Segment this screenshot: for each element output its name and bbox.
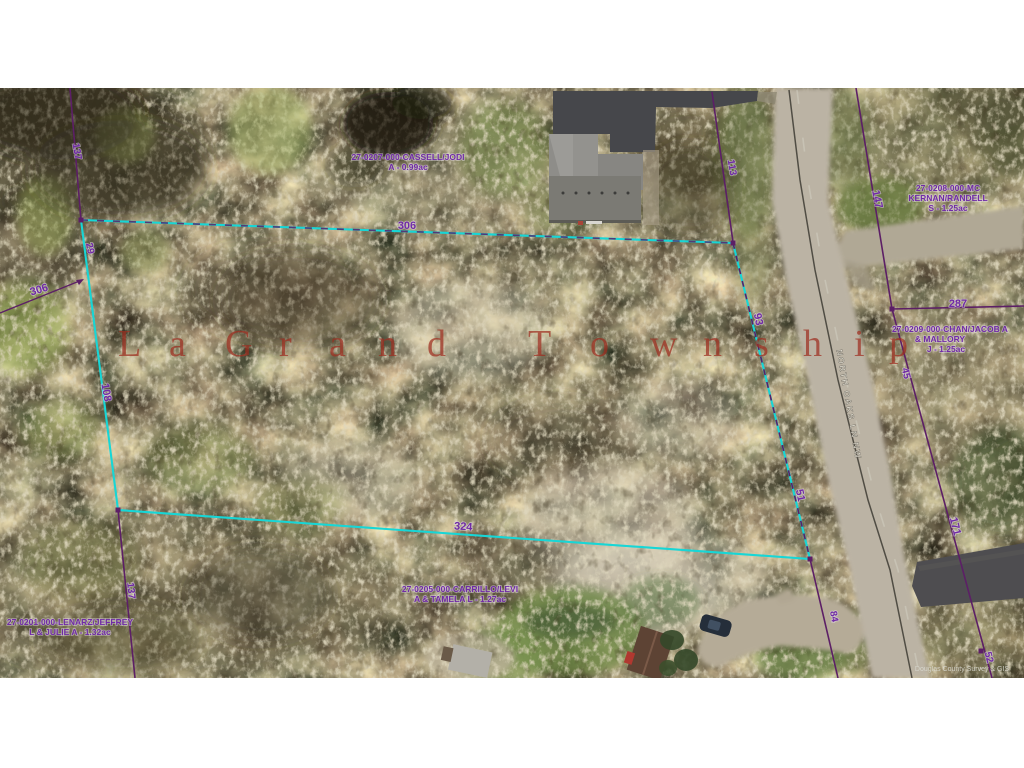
svg-text:27-0207-000-CASSELL/JODI: 27-0207-000-CASSELL/JODI — [352, 152, 465, 162]
svg-text:d: d — [427, 323, 446, 365]
svg-text:51: 51 — [793, 488, 807, 502]
svg-text:G: G — [225, 323, 252, 365]
svg-text:r: r — [279, 323, 292, 365]
svg-text:i: i — [854, 323, 865, 365]
svg-text:L & JULIE A - 1.32ac: L & JULIE A - 1.32ac — [29, 627, 111, 637]
svg-text:306: 306 — [398, 220, 416, 232]
svg-text:a: a — [329, 323, 346, 365]
svg-text:27-0201-000-LENARZ/JEFFREY: 27-0201-000-LENARZ/JEFFREY — [7, 617, 133, 627]
svg-text:h: h — [803, 323, 822, 365]
svg-text:& MALLORY: & MALLORY — [915, 334, 966, 344]
svg-text:Douglas County Survey & GIS: Douglas County Survey & GIS — [915, 666, 1009, 673]
svg-text:27-0209-000-CHAN/JACOB A: 27-0209-000-CHAN/JACOB A — [892, 324, 1008, 334]
svg-text:s: s — [754, 323, 769, 365]
svg-text:S - 1.25ac: S - 1.25ac — [928, 203, 967, 213]
svg-text:n: n — [378, 323, 397, 365]
svg-text:J - 1.25ac: J - 1.25ac — [927, 344, 966, 354]
svg-text:27-0205-000-CARRILLO/LEVI: 27-0205-000-CARRILLO/LEVI — [402, 584, 518, 594]
svg-text:o: o — [590, 323, 609, 365]
svg-text:137: 137 — [124, 582, 137, 600]
svg-text:L: L — [118, 323, 141, 365]
svg-text:27-0208-000-MC: 27-0208-000-MC — [916, 183, 980, 193]
svg-text:A & TAMELA L - 1.27ac: A & TAMELA L - 1.27ac — [414, 594, 506, 604]
svg-text:w: w — [650, 323, 678, 365]
svg-text:T: T — [528, 323, 551, 365]
svg-text:n: n — [703, 323, 722, 365]
svg-text:A - 0.99ac: A - 0.99ac — [388, 162, 428, 172]
svg-text:a: a — [169, 323, 186, 365]
svg-text:287: 287 — [949, 298, 967, 310]
svg-text:KERNAN/RANDELL: KERNAN/RANDELL — [908, 193, 987, 203]
svg-text:324: 324 — [454, 520, 474, 533]
svg-text:p: p — [889, 323, 908, 365]
